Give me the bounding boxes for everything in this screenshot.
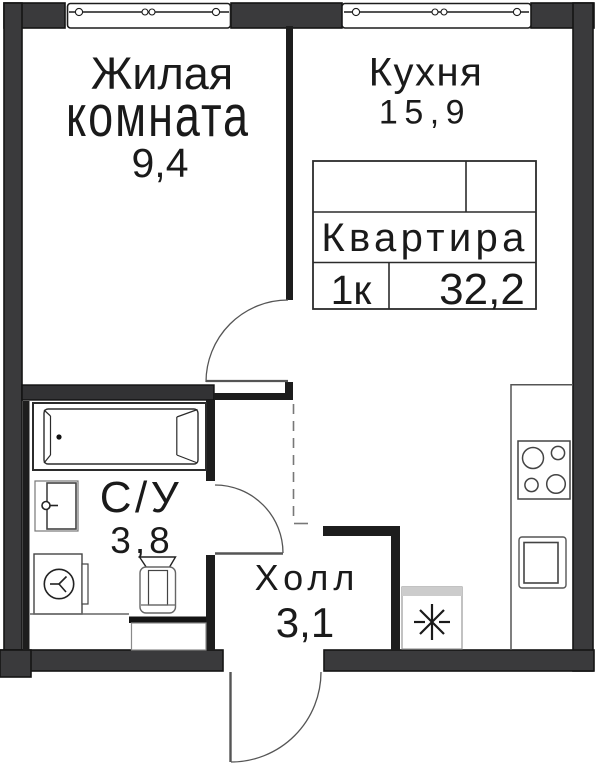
svg-text:3,8: 3,8 [110, 520, 173, 561]
svg-text:32,2: 32,2 [439, 265, 525, 314]
svg-text:С/У: С/У [100, 473, 182, 522]
svg-text:15,9: 15,9 [379, 94, 471, 132]
svg-text:Квартира: Квартира [321, 216, 528, 260]
svg-text:1к: 1к [331, 267, 373, 313]
svg-text:Холл: Холл [255, 557, 360, 598]
svg-text:3,1: 3,1 [276, 599, 334, 646]
svg-text:9,4: 9,4 [132, 140, 189, 186]
svg-text:Кухня: Кухня [369, 51, 484, 95]
